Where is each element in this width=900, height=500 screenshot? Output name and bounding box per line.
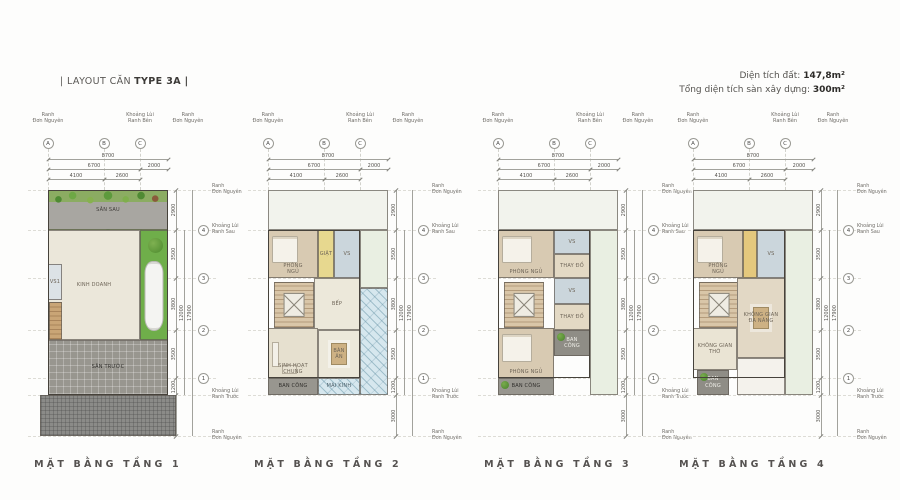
room: [504, 282, 544, 328]
room: [360, 230, 388, 288]
land-area-label: Diện tích đất:: [739, 71, 800, 81]
room: MÁI KÍNH: [318, 378, 360, 395]
room-label: KHÔNG GIAN ĐA NĂNG: [743, 311, 780, 326]
room-label: VS: [343, 250, 352, 258]
room: SINH HOẠT CHUNG: [268, 328, 318, 378]
room: GIẶT: [318, 230, 334, 278]
room: [693, 190, 813, 230]
floor-area-label: Tổng diện tích sàn xây dựng:: [679, 85, 810, 95]
column-marker: A: [688, 138, 699, 149]
room-label: PHÒNG NGỦ: [694, 262, 742, 277]
row-marker: 2: [198, 325, 209, 336]
room: BÀN ĂN: [318, 330, 360, 378]
room-label: VS: [568, 287, 577, 295]
row-marker: 3: [198, 273, 209, 284]
room: PHÒNG NGỦ: [498, 328, 554, 378]
land-area-line: Diện tích đất: 147,8m²: [679, 70, 845, 84]
row-marker: 2: [648, 325, 659, 336]
room: [498, 190, 618, 230]
row-marker: 3: [843, 273, 854, 284]
row-marker: 2: [418, 325, 429, 336]
room: KHÔNG GIAN THỜ: [693, 328, 737, 370]
room-label: KINH DOANH: [76, 281, 112, 289]
room-label: MÁI KÍNH: [326, 382, 353, 390]
room: KHÔNG GIAN ĐA NĂNG: [737, 278, 785, 358]
row-marker: 1: [843, 373, 854, 384]
room: VS: [554, 278, 590, 304]
bed-icon: [502, 334, 532, 362]
room-label: BAN CÔNG: [278, 382, 309, 390]
floor-plan-panel-tang-1: Ranh Đơn NguyênKhoảng Lùi Ranh BênRanh Đ…: [18, 112, 223, 474]
room-label: PHÒNG NGỦ: [499, 268, 553, 276]
layout-type-label: | LAYOUT CĂNTYPE 3A |: [60, 76, 189, 87]
room-label: THAY ĐỒ: [559, 313, 585, 321]
room: BAN CÔNG: [554, 330, 590, 356]
room: THAY ĐỒ: [554, 254, 590, 278]
room: BAN CÔNG: [697, 370, 729, 395]
room: [140, 230, 168, 340]
floor-plan-drawing: PHÒNG NGỦVSKHÔNG GIAN ĐA NĂNGKHÔNG GIAN …: [663, 112, 868, 474]
room: SÂN TRƯỚC: [48, 340, 168, 395]
room-label: GIẶT: [319, 250, 334, 258]
stairs-icon: [514, 293, 535, 317]
room-label: BAN CÔNG: [563, 336, 581, 351]
column-marker: A: [493, 138, 504, 149]
room: [743, 230, 757, 278]
floor-plan-panel-tang-2: Ranh Đơn NguyênKhoảng Lùi Ranh BênRanh Đ…: [238, 112, 443, 474]
room: THAY ĐỒ: [554, 304, 590, 330]
room: [268, 190, 388, 230]
room: PHÒNG NGỦ: [268, 230, 318, 278]
column-marker: A: [263, 138, 274, 149]
room: BAN CÔNG: [268, 378, 318, 395]
plan-caption: MẶT BẰNG TẦNG 4: [673, 459, 833, 470]
bed-icon: [272, 236, 298, 263]
floor-plan-drawing: PHÒNG NGỦGIẶTVSBẾPSINH HOẠT CHUNGBÀN ĂNB…: [238, 112, 443, 474]
room: [360, 288, 388, 395]
room: [49, 302, 62, 340]
room: PHÒNG NGỦ: [498, 230, 554, 278]
room-label: BÀN ĂN: [332, 347, 345, 362]
floor-plan-sheet: | LAYOUT CĂNTYPE 3A | Diện tích đất: 147…: [0, 0, 900, 500]
floor-area-line: Tổng diện tích sàn xây dựng: 300m²: [679, 84, 845, 98]
room: [590, 230, 618, 395]
column-marker: B: [549, 138, 560, 149]
column-marker: B: [99, 138, 110, 149]
row-marker: 4: [418, 225, 429, 236]
row-marker: 1: [418, 373, 429, 384]
room-label: BAN CÔNG: [511, 382, 542, 390]
room-label: SÂN TRƯỚC: [91, 363, 126, 371]
row-marker: 1: [198, 373, 209, 384]
floor-plan-drawing: SÂN SAUKINH DOANHVS1SÂN TRƯỚC: [18, 112, 223, 474]
tree-icon: [148, 238, 163, 253]
room: [274, 282, 314, 328]
room: VS: [757, 230, 785, 278]
room: [40, 395, 176, 436]
floor-plan-drawing: PHÒNG NGỦVSTHAY ĐỒVSTHAY ĐỒPHÒNG NGỦBAN …: [468, 112, 673, 474]
column-marker: C: [585, 138, 596, 149]
stairs-icon: [709, 293, 730, 317]
room: [699, 282, 739, 328]
floor-plan-panel-tang-4: Ranh Đơn NguyênKhoảng Lùi Ranh BênRanh Đ…: [663, 112, 868, 474]
stairs-icon: [284, 293, 305, 317]
column-marker: C: [135, 138, 146, 149]
room-label: THAY ĐỒ: [559, 262, 585, 270]
plan-caption: MẶT BẰNG TẦNG 1: [28, 459, 188, 470]
room-label: VS1: [49, 278, 61, 286]
room: PHÒNG NGỦ: [693, 230, 743, 278]
room-label: PHÒNG NGỦ: [269, 262, 317, 277]
room-label: SÂN SAU: [95, 206, 121, 214]
room: [737, 358, 785, 395]
floor-plan-panel-tang-3: Ranh Đơn NguyênKhoảng Lùi Ranh BênRanh Đ…: [468, 112, 673, 474]
car-icon: [145, 261, 164, 331]
row-marker: 4: [648, 225, 659, 236]
room: BẾP: [314, 278, 360, 330]
room: VS: [334, 230, 360, 278]
layout-label-type: TYPE 3A |: [134, 76, 188, 87]
shrub-icon: [501, 381, 509, 389]
row-marker: 4: [198, 225, 209, 236]
row-marker: 2: [843, 325, 854, 336]
room-label: VS: [767, 250, 776, 258]
row-marker: 3: [418, 273, 429, 284]
column-marker: B: [319, 138, 330, 149]
room-label: BẾP: [331, 300, 343, 308]
bed-icon: [697, 236, 723, 263]
column-marker: C: [780, 138, 791, 149]
room-label: SINH HOẠT CHUNG: [269, 362, 317, 377]
room-label: PHÒNG NGỦ: [499, 368, 553, 376]
room: [785, 230, 813, 395]
column-marker: C: [355, 138, 366, 149]
room: VS1: [48, 264, 62, 300]
plan-caption: MẶT BẰNG TẦNG 2: [248, 459, 408, 470]
layout-label-prefix: | LAYOUT CĂN: [60, 76, 131, 87]
land-area-value: 147,8m²: [803, 71, 845, 81]
row-marker: 3: [648, 273, 659, 284]
row-marker: 1: [648, 373, 659, 384]
plan-caption: MẶT BẰNG TẦNG 3: [478, 459, 638, 470]
room-label: VS: [568, 238, 577, 246]
column-marker: B: [744, 138, 755, 149]
floor-area-value: 300m²: [813, 85, 845, 95]
room: SÂN SAU: [48, 190, 168, 230]
room: BAN CÔNG: [498, 378, 554, 395]
room-label: KHÔNG GIAN THỜ: [694, 342, 736, 357]
bed-icon: [502, 236, 532, 263]
column-marker: A: [43, 138, 54, 149]
area-summary: Diện tích đất: 147,8m² Tổng diện tích sà…: [679, 70, 845, 98]
room-label: BAN CÔNG: [704, 375, 722, 390]
room: VS: [554, 230, 590, 254]
row-marker: 4: [843, 225, 854, 236]
